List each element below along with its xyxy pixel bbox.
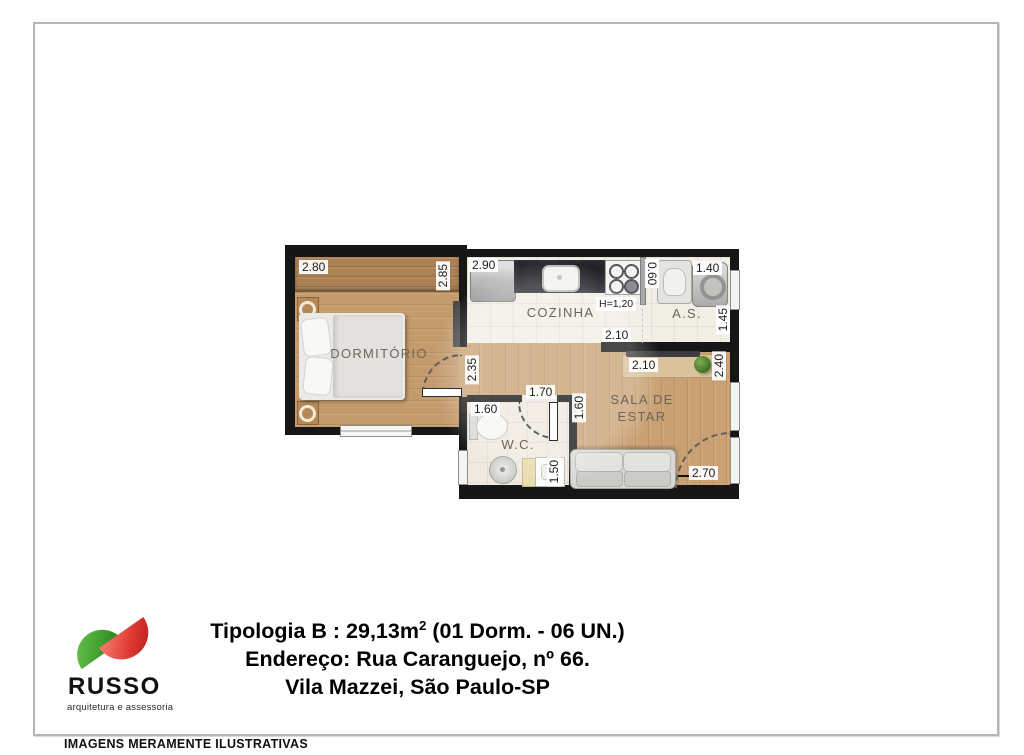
dim-dorm-depth: 2.85 [436, 261, 450, 290]
sink-drain [557, 275, 562, 280]
open-door-leaf [453, 301, 460, 347]
nightstand [297, 401, 319, 425]
kitchen-counter [514, 260, 605, 293]
dim-hall-depth: 2.35 [465, 355, 479, 384]
washer-drum-icon [700, 274, 726, 300]
burner-icon [609, 279, 624, 294]
service-window [730, 270, 740, 310]
entry-door-window [730, 437, 740, 484]
disclaimer-text: IMAGENS MERAMENTE ILUSTRATIVAS [64, 737, 308, 751]
kitchen-sink [542, 265, 580, 292]
sofa-seat-cushion [624, 471, 671, 487]
dim-as-depth: 1.45 [716, 305, 730, 334]
city-line: Vila Mazzei, São Paulo-SP [120, 673, 715, 701]
toilet [476, 413, 508, 440]
room-label-sala-line2: ESTAR [585, 408, 699, 425]
tank-basin [663, 268, 686, 296]
logo-name: RUSSO [68, 673, 161, 701]
sofa-back-cushion [623, 452, 671, 472]
burner-icon [609, 264, 624, 279]
dim-kitchen-width: 2.10 [602, 328, 631, 342]
dim-hall-width: 1.70 [526, 385, 555, 399]
room-label-sala-line1: SALA DE [585, 391, 699, 408]
plant-icon [694, 356, 711, 373]
room-label-sala: SALA DE ESTAR [585, 391, 699, 425]
dim-counter-height: H=1,20 [596, 297, 636, 311]
typology-title-units: (01 Dorm. - 06 UN.) [426, 619, 624, 643]
burner-icon [624, 264, 639, 279]
address-line: Endereço: Rua Caranguejo, nº 66. [120, 645, 715, 673]
sofa [570, 449, 676, 489]
room-label-cozinha: COZINHA [513, 305, 608, 320]
floor-plan: 2.80 2.90 1.40 H=1,20 2.10 2.10 1.70 1.6… [285, 245, 739, 499]
pillow [302, 356, 334, 397]
lamp-icon [299, 405, 316, 422]
flyer-page: 2.80 2.90 1.40 H=1,20 2.10 2.10 1.70 1.6… [0, 0, 1024, 755]
stove [605, 260, 641, 295]
living-window [730, 382, 740, 431]
room-label-wc: W.C. [491, 437, 545, 452]
bedroom-window [340, 425, 412, 437]
room-label-as: A.S. [663, 306, 711, 321]
dim-dorm-width: 2.80 [299, 260, 328, 274]
typology-info: Tipologia B : 29,13m2 (01 Dorm. - 06 UN.… [120, 612, 715, 701]
shower-drain [500, 467, 505, 472]
company-logo: RUSSO arquitetura e assessoria [58, 614, 188, 724]
sofa-seat-cushion [576, 471, 623, 487]
typology-title-text: Tipologia B : 29,13m [210, 619, 419, 643]
dim-as-pass: 0.60 [645, 259, 659, 288]
dim-as-width: 1.40 [693, 261, 722, 275]
burner-icon [624, 279, 639, 294]
laundry-tank [657, 260, 692, 304]
wc-door-leaf [549, 402, 558, 441]
room-label-dormitorio: DORMITÓRIO [323, 346, 435, 361]
logo-red-leaf-icon [99, 617, 159, 670]
logo-tagline: arquitetura e assessoria [67, 702, 173, 713]
dim-kitchen-entry: 2.90 [469, 258, 498, 272]
floor-divider-line [642, 303, 644, 343]
dim-sala-side: 1.60 [572, 393, 586, 422]
dim-sala-width: 2.70 [689, 466, 718, 480]
tv-icon [626, 351, 700, 357]
dim-sala-depth: 2.40 [712, 351, 726, 380]
sofa-back-cushion [575, 452, 623, 472]
shower [489, 456, 517, 484]
bedroom-door-leaf [422, 388, 462, 397]
typology-title: Tipologia B : 29,13m2 (01 Dorm. - 06 UN.… [120, 612, 715, 645]
dim-tv-wall: 2.10 [629, 358, 658, 372]
dim-wc-width: 1.60 [471, 402, 500, 416]
wc-window [458, 450, 468, 485]
dim-wc-depth: 1.50 [547, 457, 561, 486]
